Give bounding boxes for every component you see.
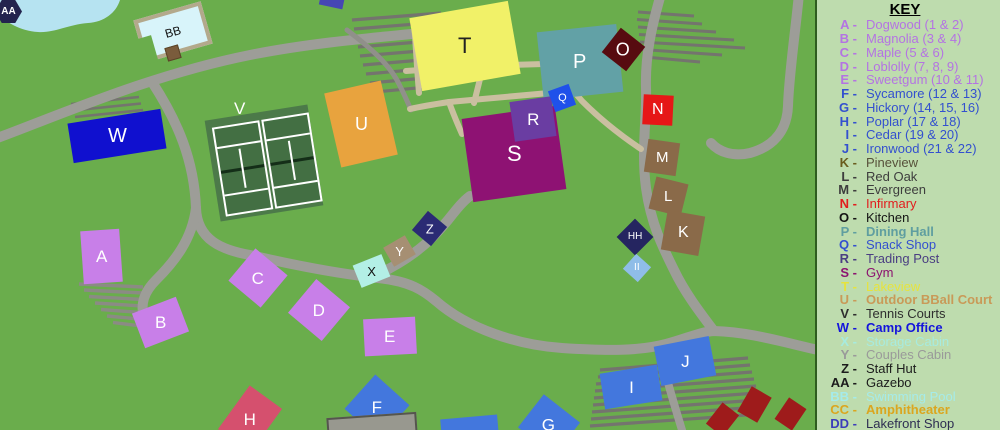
infirmary: N — [642, 94, 674, 126]
tennis-courts — [205, 104, 324, 221]
key-letter: P - — [825, 224, 857, 239]
key-name: Amphitheater — [866, 402, 950, 417]
key-name: Tennis Courts — [866, 306, 945, 321]
key-entry-x: X -Storage Cabin — [825, 334, 1000, 348]
key-letter: CC - — [825, 402, 857, 417]
camp-map-screenshot: V BB AA WUTPOSRQNMLKHHIIZYXABCDEFGHIJ KE… — [0, 0, 1000, 430]
map-key-panel: KEY A -Dogwood (1 & 2)B -Magnolia (3 & 4… — [815, 0, 1000, 430]
cabin-dogwood: A — [80, 229, 123, 285]
key-name: Storage Cabin — [866, 334, 949, 349]
swimming-pool-label: BB — [163, 23, 182, 41]
key-name: Magnolia (3 & 4) — [866, 31, 961, 46]
kitchen-label: O — [616, 40, 630, 58]
hh-hut-label: HH — [628, 232, 642, 242]
key-name: Sycamore (12 & 13) — [866, 86, 982, 101]
key-entry-aa: AA -Gazebo — [825, 376, 1000, 390]
cabin-sycamore-label: F — [372, 398, 382, 415]
cabin-magnolia-label: B — [155, 314, 166, 331]
key-name: Dogwood (1 & 2) — [866, 17, 964, 32]
key-entries: A -Dogwood (1 & 2)B -Magnolia (3 & 4)C -… — [825, 18, 1000, 430]
snack-shop-label: Q — [558, 93, 567, 104]
cabin-hickory-label: G — [542, 416, 555, 430]
key-name: Trading Post — [866, 251, 939, 266]
camp-office-label: W — [108, 126, 127, 146]
key-name: Lakeview — [866, 279, 920, 294]
cabin-dogwood-label: A — [96, 248, 107, 265]
key-entry-b: B -Magnolia (3 & 4) — [825, 32, 1000, 46]
key-entry-m: M -Evergreen — [825, 183, 1000, 197]
dining-hall-label: P — [573, 52, 586, 72]
key-letter: F - — [825, 86, 857, 101]
storage-cabin-label: X — [367, 265, 376, 278]
key-letter: V - — [825, 306, 857, 321]
key-entry-y: Y -Couples Cabin — [825, 348, 1000, 362]
key-name: Outdoor BBall Court — [866, 292, 992, 307]
key-letter: G - — [825, 100, 857, 115]
evergreen-label: M — [656, 150, 669, 165]
key-name: Infirmary — [866, 196, 917, 211]
key-name: Kitchen — [866, 210, 909, 225]
key-entry-r: R -Trading Post — [825, 252, 1000, 266]
key-entry-dd: DD -Lakefront Shop — [825, 417, 1000, 430]
key-name: Ironwood (21 & 22) — [866, 141, 977, 156]
infirmary-label: N — [652, 102, 664, 118]
key-entry-h: H -Poplar (17 & 18) — [825, 114, 1000, 128]
key-letter: J - — [825, 141, 857, 156]
couples-cabin-label: Y — [395, 245, 404, 258]
key-entry-v: V -Tennis Courts — [825, 307, 1000, 321]
key-letter: Z - — [825, 361, 857, 376]
key-entry-o: O -Kitchen — [825, 211, 1000, 225]
key-letter: B - — [825, 31, 857, 46]
key-entry-bb: BB -Swimming Pool — [825, 389, 1000, 403]
key-letter: H - — [825, 114, 857, 129]
key-entry-k: K -Pineview — [825, 156, 1000, 170]
key-name: Couples Cabin — [866, 347, 951, 362]
gym-label: S — [507, 143, 522, 165]
red-oak-label: L — [664, 189, 672, 204]
key-name: Poplar (17 & 18) — [866, 114, 961, 129]
key-name: Cedar (19 & 20) — [866, 127, 959, 142]
key-letter: D - — [825, 59, 857, 74]
key-name: Gym — [866, 265, 893, 280]
key-name: Gazebo — [866, 375, 912, 390]
key-letter: A - — [825, 17, 857, 32]
key-name: Snack Shop — [866, 237, 936, 252]
cabin-cedar-label: I — [629, 379, 634, 396]
cabin-poplar-label: H — [244, 411, 256, 428]
key-entry-u: U -Outdoor BBall Court — [825, 293, 1000, 307]
lakeview-label: T — [458, 35, 471, 57]
key-entry-l: L -Red Oak — [825, 169, 1000, 183]
key-entry-z: Z -Staff Hut — [825, 362, 1000, 376]
key-letter: K - — [825, 155, 857, 170]
key-name: Sweetgum (10 & 11) — [866, 72, 984, 87]
key-name: Staff Hut — [866, 361, 916, 376]
key-entry-d: D -Loblolly (7, 8, 9) — [825, 59, 1000, 73]
key-letter: DD - — [825, 416, 857, 430]
key-letter: N - — [825, 196, 857, 211]
key-letter: U - — [825, 292, 857, 307]
pineview-label: K — [678, 225, 689, 241]
key-name: Hickory (14, 15, 16) — [866, 100, 979, 115]
key-name: Loblolly (7, 8, 9) — [866, 59, 959, 74]
key-entry-g: G -Hickory (14, 15, 16) — [825, 101, 1000, 115]
dining-hall: P — [537, 24, 624, 100]
key-letter: L - — [825, 169, 857, 184]
pineview: K — [661, 210, 705, 256]
key-letter: X - — [825, 334, 857, 349]
key-letter: Q - — [825, 237, 857, 252]
key-name: Lakefront Shop — [866, 416, 954, 430]
cabin-loblolly-label: D — [313, 302, 325, 319]
key-name: Swimming Pool — [866, 389, 956, 404]
cabin-maple-label: C — [252, 270, 264, 287]
key-entry-t: T -Lakeview — [825, 279, 1000, 293]
key-name: Maple (5 & 6) — [866, 45, 944, 60]
key-letter: R - — [825, 251, 857, 266]
key-entry-f: F -Sycamore (12 & 13) — [825, 87, 1000, 101]
cabin-sweetgum-label: E — [384, 328, 395, 345]
key-entry-a: A -Dogwood (1 & 2) — [825, 18, 1000, 32]
key-entry-cc: CC -Amphitheater — [825, 403, 1000, 417]
key-letter: T - — [825, 279, 857, 294]
cabin-ironwood-label: J — [681, 353, 690, 370]
key-name: Dining Hall — [866, 224, 934, 239]
key-entry-s: S -Gym — [825, 266, 1000, 280]
key-entry-n: N -Infirmary — [825, 197, 1000, 211]
cabin-sweetgum: E — [363, 317, 417, 357]
trading-post-label: R — [527, 111, 539, 128]
key-name: Pineview — [866, 155, 918, 170]
key-entry-e: E -Sweetgum (10 & 11) — [825, 73, 1000, 87]
key-letter: BB - — [825, 389, 857, 404]
key-letter: AA - — [825, 375, 857, 390]
key-name: Red Oak — [866, 169, 917, 184]
key-letter: W - — [825, 320, 857, 335]
key-letter: C - — [825, 45, 857, 60]
tennis-courts-label: V — [234, 99, 245, 119]
key-letter: S - — [825, 265, 857, 280]
evergreen: M — [644, 139, 680, 176]
key-name: Evergreen — [866, 182, 926, 197]
gazebo-label: AA — [1, 6, 15, 17]
key-letter: M - — [825, 182, 857, 197]
key-entry-c: C -Maple (5 & 6) — [825, 46, 1000, 60]
map-canvas: V BB AA WUTPOSRQNMLKHHIIZYXABCDEFGHIJ — [0, 0, 815, 430]
key-title: KEY — [825, 1, 985, 18]
key-letter: I - — [825, 127, 857, 142]
staff-hut-label: Z — [426, 222, 434, 235]
key-entry-w: W -Camp Office — [825, 321, 1000, 335]
key-entry-j: J -Ironwood (21 & 22) — [825, 142, 1000, 156]
ii-hut-label: II — [634, 263, 640, 273]
key-letter: O - — [825, 210, 857, 225]
outdoor-bball-court-label: U — [355, 115, 368, 133]
key-letter: Y - — [825, 347, 857, 362]
key-letter: E - — [825, 72, 857, 87]
key-name: Camp Office — [866, 320, 943, 335]
key-entry-p: P -Dining Hall — [825, 224, 1000, 238]
key-entry-i: I -Cedar (19 & 20) — [825, 128, 1000, 142]
key-entry-q: Q -Snack Shop — [825, 238, 1000, 252]
trading-post: R — [509, 96, 556, 141]
